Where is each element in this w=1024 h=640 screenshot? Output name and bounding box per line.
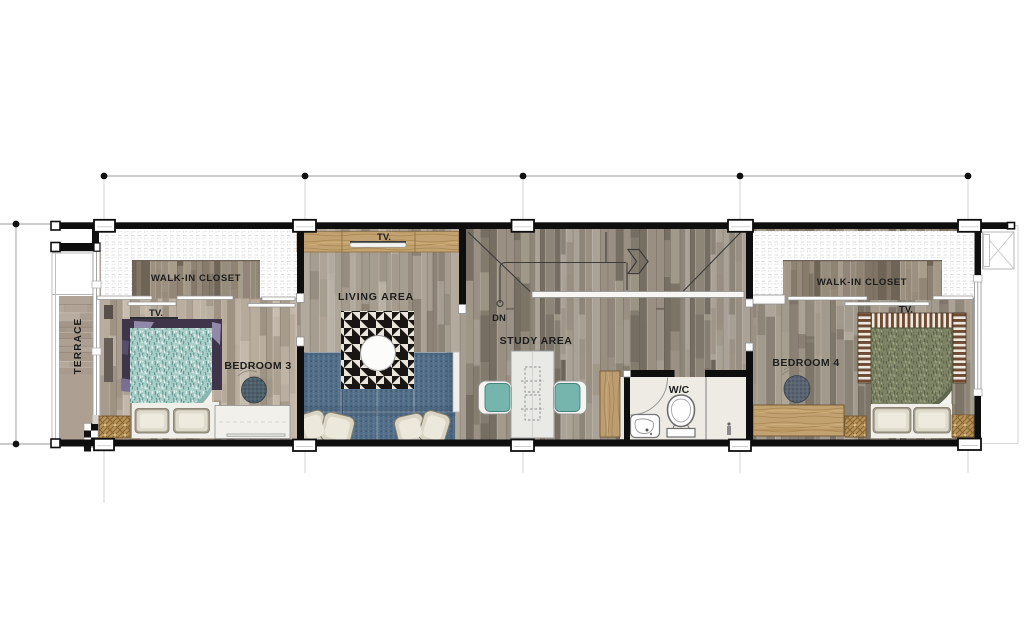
svg-text:TV.: TV. — [899, 305, 913, 316]
svg-text:TV.: TV. — [149, 308, 163, 319]
svg-text:WALK-IN CLOSET: WALK-IN CLOSET — [817, 277, 907, 288]
svg-text:TERRACE: TERRACE — [73, 318, 84, 375]
svg-text:TV.: TV. — [377, 232, 391, 243]
svg-text:W/C: W/C — [669, 384, 690, 396]
svg-text:LIVING AREA: LIVING AREA — [338, 291, 414, 303]
svg-text:BEDROOM 4: BEDROOM 4 — [772, 357, 839, 369]
svg-text:BEDROOM 3: BEDROOM 3 — [224, 360, 291, 372]
svg-text:DN: DN — [492, 313, 506, 324]
svg-text:STUDY AREA: STUDY AREA — [500, 335, 573, 347]
svg-text:WALK-IN CLOSET: WALK-IN CLOSET — [151, 273, 241, 284]
